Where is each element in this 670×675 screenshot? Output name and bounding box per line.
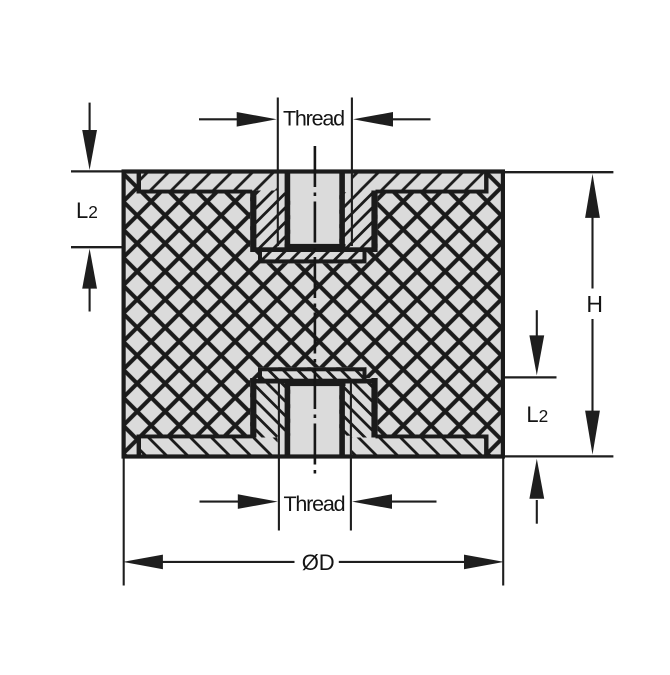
svg-text:L: L	[76, 198, 88, 223]
svg-text:Thread: Thread	[283, 492, 344, 516]
svg-text:L: L	[526, 402, 538, 427]
svg-text:Thread: Thread	[283, 107, 344, 131]
svg-text:2: 2	[88, 202, 98, 222]
svg-text:ØD: ØD	[302, 550, 335, 575]
svg-text:H: H	[586, 291, 603, 317]
svg-text:2: 2	[539, 406, 549, 426]
